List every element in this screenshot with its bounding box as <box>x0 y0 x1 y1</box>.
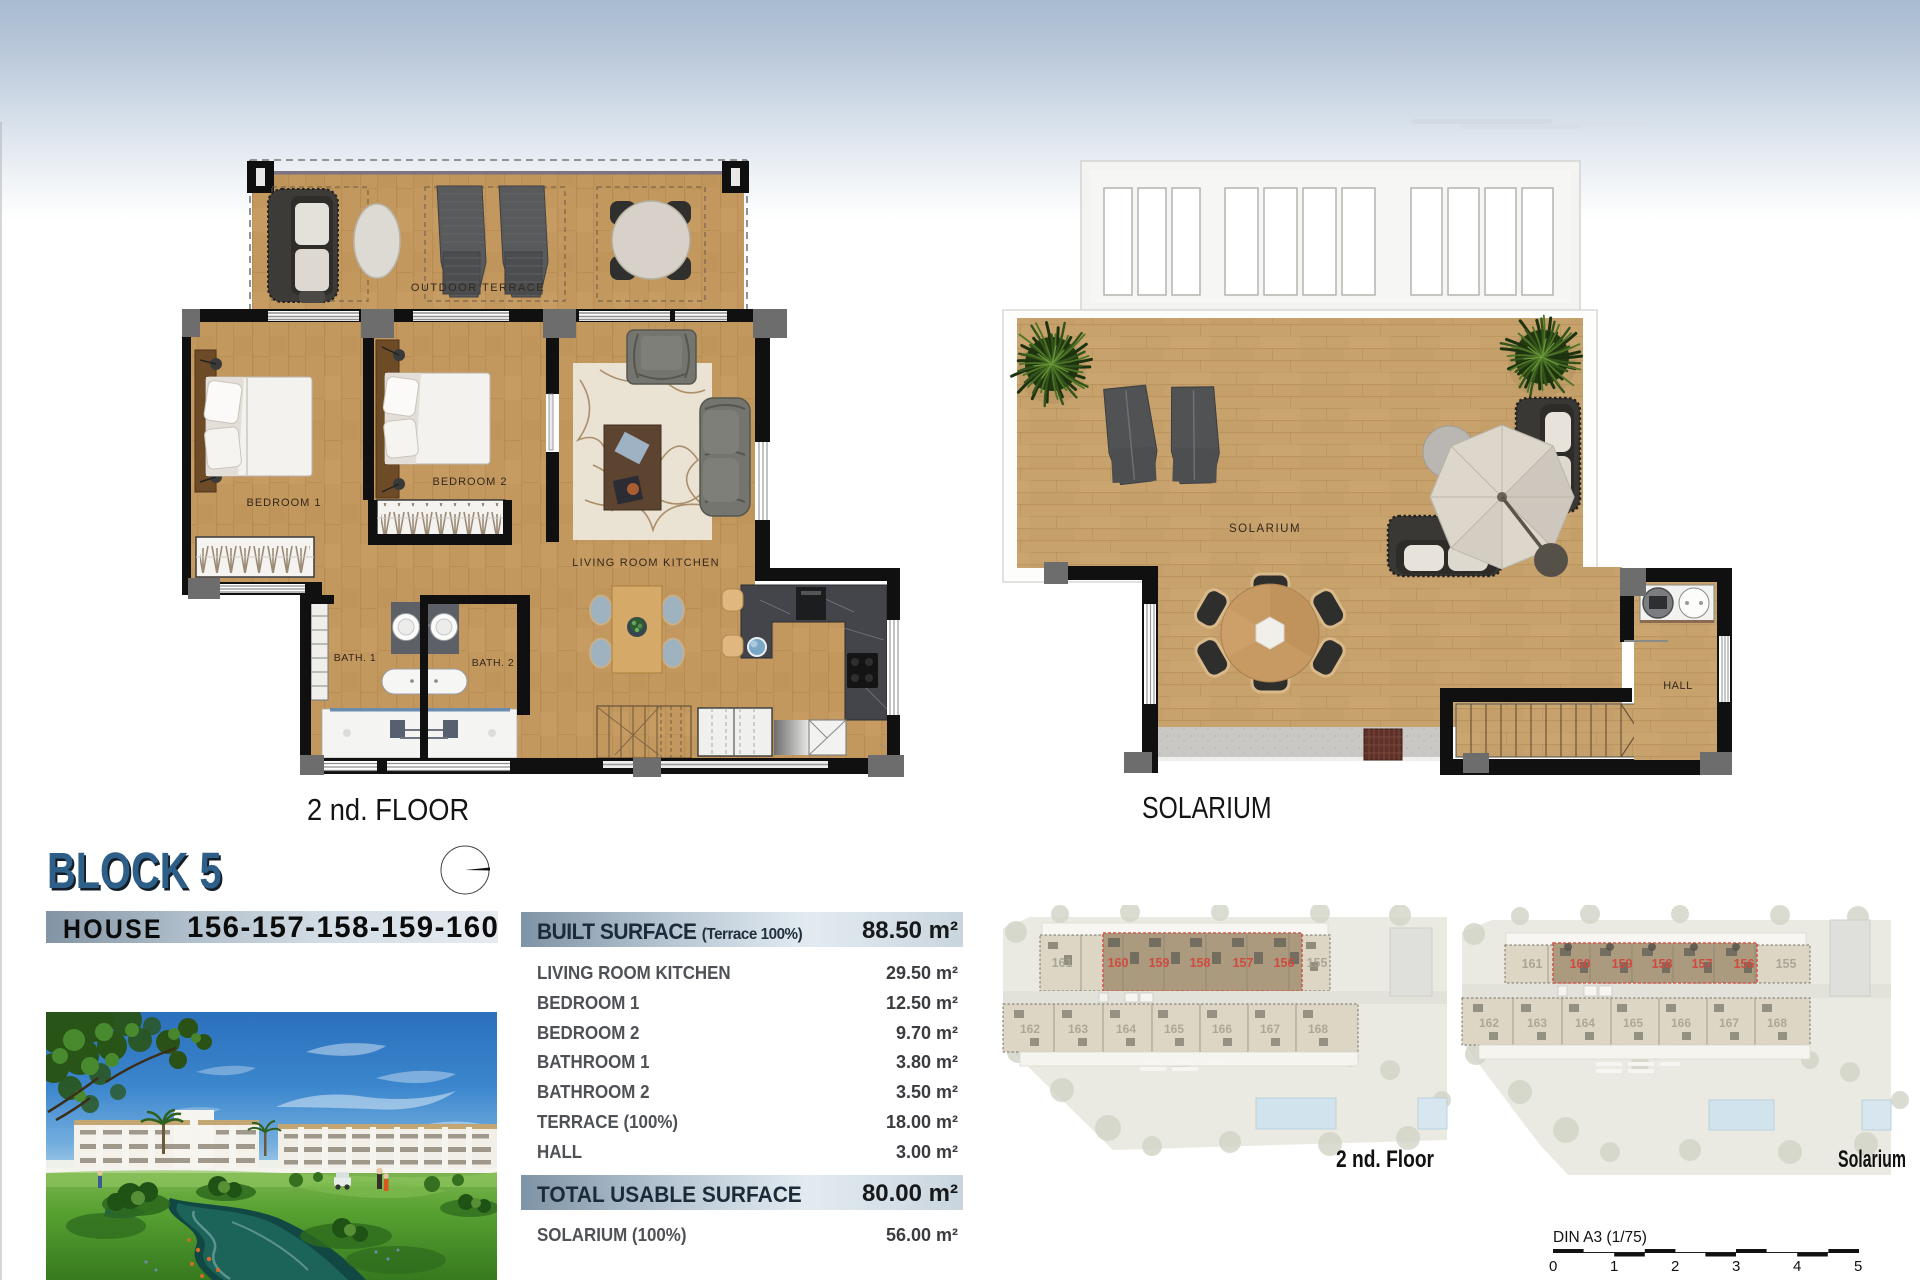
svg-text:160: 160 <box>1570 957 1591 971</box>
svg-text:160: 160 <box>1108 956 1129 970</box>
svg-text:2 nd. Floor: 2 nd. Floor <box>1336 1146 1434 1173</box>
svg-text:0: 0 <box>1549 1258 1557 1275</box>
svg-text:BATH. 1: BATH. 1 <box>334 652 376 664</box>
svg-text:165: 165 <box>1164 1022 1184 1036</box>
svg-text:163: 163 <box>1527 1016 1547 1030</box>
svg-text:162: 162 <box>1020 1022 1040 1036</box>
svg-text:167: 167 <box>1260 1022 1280 1036</box>
svg-text:158: 158 <box>1652 957 1673 971</box>
svg-text:167: 167 <box>1719 1016 1739 1030</box>
svg-text:1: 1 <box>1610 1258 1618 1275</box>
svg-text:163: 163 <box>1068 1022 1088 1036</box>
svg-text:164: 164 <box>1575 1016 1595 1030</box>
svg-text:155: 155 <box>1307 956 1328 970</box>
svg-text:4: 4 <box>1793 1258 1801 1275</box>
svg-text:2: 2 <box>1671 1258 1679 1275</box>
svg-text:164: 164 <box>1116 1022 1136 1036</box>
svg-text:BATH. 2: BATH. 2 <box>472 657 514 669</box>
svg-text:HALL: HALL <box>1663 680 1693 692</box>
svg-text:5: 5 <box>1854 1258 1862 1275</box>
svg-text:3: 3 <box>1732 1258 1740 1275</box>
svg-text:DIN A3 (1/75): DIN A3 (1/75) <box>1553 1229 1647 1246</box>
svg-text:161: 161 <box>1522 957 1543 971</box>
svg-text:LIVING ROOM KITCHEN: LIVING ROOM KITCHEN <box>572 557 719 569</box>
svg-text:162: 162 <box>1479 1016 1499 1030</box>
svg-text:168: 168 <box>1767 1016 1787 1030</box>
svg-text:BEDROOM 1: BEDROOM 1 <box>246 497 321 509</box>
svg-text:SOLARIUM: SOLARIUM <box>1229 523 1301 535</box>
svg-text:OUTDOOR TERRACE: OUTDOOR TERRACE <box>411 282 545 294</box>
svg-text:159: 159 <box>1612 957 1633 971</box>
svg-text:155: 155 <box>1776 957 1797 971</box>
svg-text:BEDROOM 2: BEDROOM 2 <box>432 476 507 488</box>
svg-text:156: 156 <box>1274 956 1295 970</box>
svg-text:Solarium: Solarium <box>1838 1146 1906 1173</box>
svg-text:157: 157 <box>1692 957 1713 971</box>
svg-text:166: 166 <box>1212 1022 1232 1036</box>
svg-text:157: 157 <box>1233 956 1254 970</box>
svg-text:165: 165 <box>1623 1016 1643 1030</box>
svg-text:161: 161 <box>1052 956 1073 970</box>
svg-text:156: 156 <box>1734 957 1755 971</box>
svg-text:166: 166 <box>1671 1016 1691 1030</box>
svg-text:168: 168 <box>1308 1022 1328 1036</box>
svg-text:159: 159 <box>1149 956 1170 970</box>
svg-text:158: 158 <box>1190 956 1211 970</box>
